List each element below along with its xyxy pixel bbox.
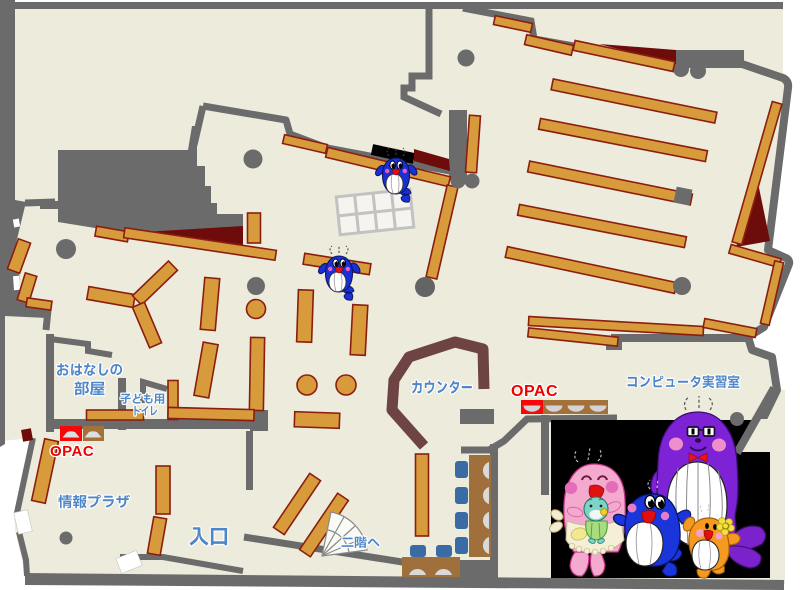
svg-text:OPAC: OPAC	[511, 383, 558, 400]
svg-text:OPAC: OPAC	[50, 443, 94, 460]
